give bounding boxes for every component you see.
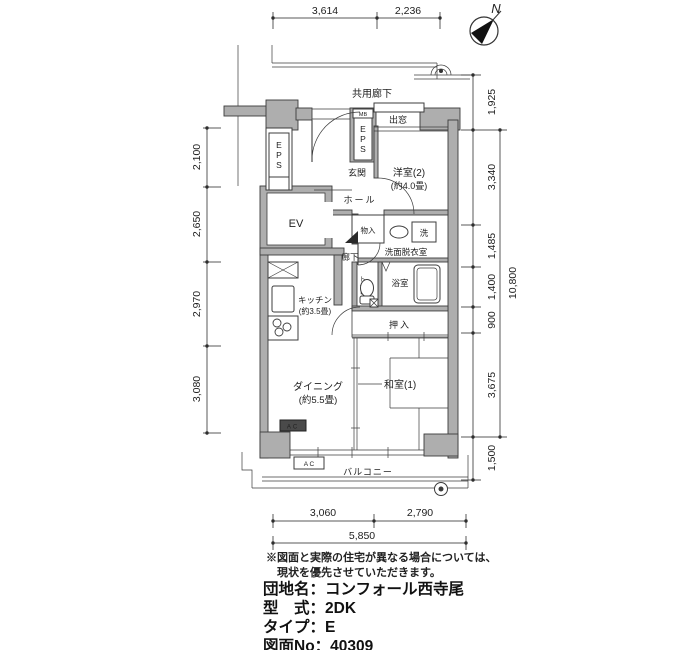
- floorplan-page: 3,614 2,236 2,100 2,650 2,970 3,080 1,92…: [0, 0, 700, 650]
- storage-label: 物入: [361, 225, 376, 235]
- dim-right-1: 1,925: [486, 89, 498, 115]
- dim-bottom-2: 2,790: [407, 507, 433, 519]
- dim-left-3: 2,970: [191, 291, 203, 317]
- bathtub: [414, 265, 440, 303]
- dining-size: (約5.5畳): [299, 394, 338, 406]
- hall-label: ホール: [343, 195, 376, 205]
- eps-top-label: EPS: [358, 124, 368, 154]
- eps-top: MB EPS: [353, 109, 373, 160]
- kitchen-size: (約3.5畳): [299, 306, 332, 316]
- property-info: 団地名：コンフォール西寺尾 型 式：2DK タイプ：E 図面No：40309: [263, 580, 464, 650]
- disclaimer-note: ※図面と実際の住宅が異なる場合については、 現状を優先させていただきます。: [266, 551, 496, 581]
- dim-top-2: 2,236: [395, 5, 421, 17]
- dim-right-total: 10,800: [507, 267, 519, 299]
- dimension-bottom: 3,060 2,790 5,850: [271, 507, 467, 550]
- dim-right-6: 3,675: [486, 372, 498, 398]
- mb-label: MB: [359, 112, 368, 118]
- dim-left-4: 3,080: [191, 376, 203, 402]
- model-type: 型 式：2DK: [263, 599, 464, 618]
- dim-bottom-total: 5,850: [349, 530, 375, 542]
- elevator-shaft: EV: [267, 193, 333, 245]
- balcony-label: バルコニー: [343, 467, 393, 477]
- disclaimer-line-1: ※図面と実際の住宅が異なる場合については、: [266, 551, 496, 566]
- washer-label: 洗: [420, 228, 429, 238]
- disclaimer-line-2: 現状を優先させていただきます。: [277, 566, 496, 581]
- dimension-right: 1,925 3,340 1,485 1,400 900 3,675 1,500 …: [461, 73, 519, 481]
- eps-left: EPS: [266, 128, 292, 190]
- corridor-label: 共用廊下: [352, 87, 392, 100]
- washbasin: [390, 226, 408, 238]
- kitchen: キッチン (約3.5畳): [268, 262, 332, 340]
- western-room2-label: 洋室(2): [393, 166, 425, 179]
- dim-right-4: 1,400: [486, 274, 498, 300]
- western-room2-size: (約4.0畳): [391, 180, 428, 191]
- bathroom-label: 浴室: [391, 278, 409, 288]
- dining: ダイニング (約5.5畳) AC: [280, 380, 343, 431]
- estate-name: 団地名：コンフォール西寺尾: [263, 580, 464, 599]
- genkan-label: 玄関: [348, 167, 366, 178]
- washroom: 物入 洗 洗面脱衣室: [345, 215, 436, 265]
- japanese-room1-label: 和室(1): [384, 378, 416, 391]
- dim-right-7: 1,500: [486, 445, 498, 471]
- drawing-number: 図面No：40309: [263, 637, 401, 650]
- closet-label: 押入: [389, 319, 411, 330]
- toilet-room: トイレ: [358, 275, 379, 307]
- bathroom: 浴室: [382, 262, 440, 303]
- dim-right-3: 1,485: [486, 233, 498, 259]
- toilet-bowl: [361, 280, 374, 297]
- washroom-label: 洗面脱衣室: [385, 247, 428, 257]
- dimension-left: 2,100 2,650 2,970 3,080: [191, 126, 221, 434]
- dim-right-2: 3,340: [486, 164, 498, 190]
- plan-type: タイプ：E: [263, 618, 464, 637]
- dining-label: ダイニング: [293, 380, 343, 393]
- dimension-top: 3,614 2,236: [271, 5, 441, 29]
- pipe-symbol: [439, 69, 443, 73]
- japanese-room-1: 押入 和室(1): [351, 311, 448, 450]
- dim-right-5: 900: [486, 311, 498, 329]
- dim-left-2: 2,650: [191, 211, 203, 237]
- eps-left-label: EPS: [274, 140, 284, 170]
- north-label: N: [491, 1, 501, 16]
- dim-bottom-1: 3,060: [310, 507, 336, 519]
- ac-indoor-label: AC: [287, 425, 299, 431]
- kitchen-label: キッチン: [298, 295, 332, 305]
- bay-window-label: 出窓: [389, 114, 407, 125]
- north-arrow: N: [470, 1, 501, 45]
- dim-top-1: 3,614: [312, 5, 338, 17]
- dim-left-1: 2,100: [191, 144, 203, 170]
- ac-outdoor-label: A C: [304, 461, 315, 468]
- ev-label: EV: [289, 218, 304, 230]
- inner-corridor-label: 廊下: [341, 252, 359, 262]
